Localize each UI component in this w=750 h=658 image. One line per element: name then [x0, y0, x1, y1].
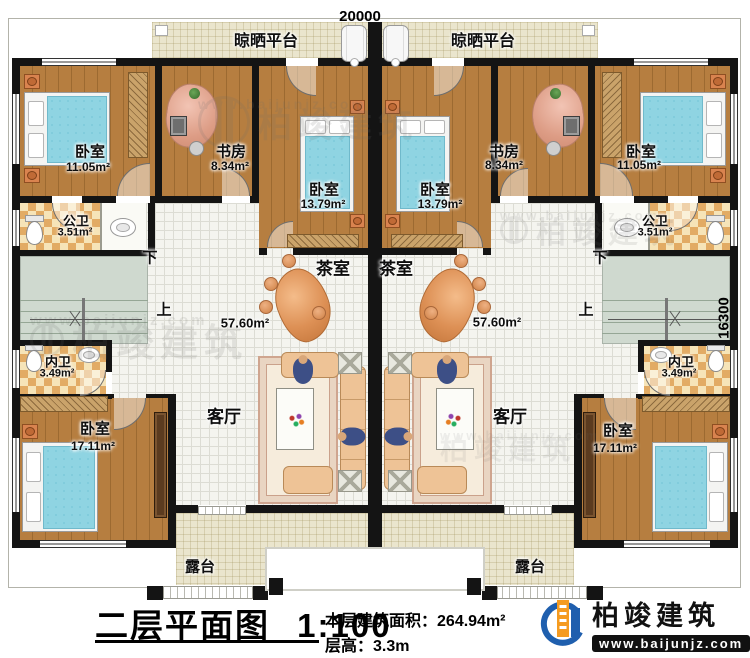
platform-corner — [582, 25, 595, 36]
room-label-study-left: 书房 — [216, 145, 246, 160]
wall — [588, 58, 595, 203]
toilet — [708, 350, 724, 372]
door-gap — [638, 372, 644, 394]
room-label-bedroom-top-left: 卧室 — [75, 145, 105, 160]
door-gap — [432, 58, 464, 66]
room-area-study-right: 8.34m² — [485, 159, 523, 171]
floor-height-label: 层高： — [325, 638, 373, 655]
wall — [638, 340, 644, 372]
wall — [382, 505, 504, 513]
pillow — [400, 120, 421, 134]
floor-height-line: 层高：3.3m — [325, 632, 409, 656]
stair-up-label-right: 上 — [578, 303, 593, 318]
stair-down-label-left: 下 — [142, 251, 157, 266]
room-area-bedroom-mid-right: 13.79m² — [418, 198, 463, 210]
wall — [483, 248, 491, 255]
wall — [382, 248, 457, 255]
room-area-bedroom-bottom-left: 17.11m² — [71, 440, 115, 452]
room-area-bedroom-top-right: 11.05m² — [617, 159, 661, 171]
pillow — [706, 133, 722, 158]
plant — [550, 88, 561, 99]
terrace-door-threshold — [504, 506, 552, 515]
company-logo: 柏竣建筑 www.baijunjz.com — [538, 594, 750, 652]
wall — [528, 196, 588, 203]
pillow — [709, 492, 724, 522]
nightstand — [385, 214, 400, 228]
washing-machine — [383, 25, 409, 62]
bed — [652, 442, 728, 532]
flower-vase — [444, 411, 464, 429]
room-label-tea-right: 茶室 — [379, 261, 413, 278]
room-label-tea-left: 茶室 — [316, 261, 350, 278]
nightstand — [712, 424, 728, 439]
hall-area-left: 57.60m² — [221, 317, 269, 330]
pillow — [706, 101, 722, 126]
floor-area-label: 本层建筑面积： — [325, 613, 437, 630]
wardrobe-hatch — [602, 72, 622, 158]
door-gap — [668, 196, 698, 203]
pillow — [709, 452, 724, 482]
stool — [454, 254, 468, 268]
sink — [614, 218, 640, 237]
room-label-terrace-left: 露台 — [185, 560, 215, 575]
wardrobe-hatch — [391, 234, 463, 248]
person-figure — [385, 428, 410, 446]
door-gap — [600, 196, 634, 203]
room-area-bedroom-bottom-right: 17.11m² — [593, 442, 637, 454]
stair-up-label-left: 上 — [156, 303, 171, 318]
stool — [477, 300, 491, 314]
wardrobe-hatch — [642, 396, 730, 412]
mattress — [655, 446, 707, 529]
room-label-bedroom-bottom-left: 卧室 — [80, 422, 110, 437]
room-area-bedroom-top-left: 11.05m² — [66, 161, 110, 173]
room-label-terrace-right: 露台 — [515, 560, 545, 575]
floor-area-value: 264.94m² — [437, 613, 506, 630]
room-label-bedroom-mid-right: 卧室 — [420, 183, 450, 198]
porch-void — [265, 547, 485, 591]
tv-cabinet — [583, 412, 596, 518]
floor-height-value: 3.3m — [373, 638, 409, 655]
wall — [574, 398, 582, 548]
stair-down-label-right: 下 — [592, 251, 607, 266]
company-logo-icon — [538, 596, 586, 650]
pillow — [424, 120, 445, 134]
logo-text-column: 柏竣建筑 www.baijunjz.com — [592, 594, 750, 652]
stool — [424, 306, 438, 320]
nightstand — [385, 100, 400, 114]
floor-area-line: 本层建筑面积：264.94m² — [325, 607, 506, 631]
dimension-width: 20000 — [339, 8, 381, 25]
room-area-public-bath-left: 3.51m² — [58, 228, 93, 239]
room-label-bedroom-bottom-right: 卧室 — [603, 424, 633, 439]
room-label-drying-left: 晾晒平台 — [234, 34, 298, 50]
computer-monitor — [563, 116, 580, 136]
wall — [595, 203, 602, 256]
window — [730, 350, 738, 388]
toilet — [707, 221, 724, 245]
window — [730, 210, 738, 246]
washing-machine-door — [391, 58, 400, 67]
side-table — [388, 470, 412, 492]
hall-area-right: 57.60m² — [473, 316, 521, 329]
stair-direction-line — [608, 319, 720, 320]
window — [634, 58, 708, 66]
wall — [491, 196, 500, 203]
porch-post — [467, 578, 481, 595]
room-label-bedroom-mid-left: 卧室 — [309, 183, 339, 198]
window — [730, 438, 738, 512]
room-label-living-right: 客厅 — [493, 409, 527, 426]
window — [624, 540, 710, 548]
stair-rail — [665, 298, 668, 344]
room-area-public-bath-right: 3.51m² — [638, 228, 673, 239]
wall — [491, 58, 498, 203]
party-wall — [368, 22, 382, 549]
room-area-bedroom-mid-left: 13.79m² — [301, 198, 346, 210]
nightstand — [710, 168, 726, 183]
desk-chair — [546, 141, 561, 156]
room-area-inner-bath-left: 3.49m² — [40, 369, 75, 380]
floor-plan-page: 柏竣建筑 www.baijunjz.com 柏竣建筑 www.baijunjz.… — [0, 0, 750, 658]
window — [730, 94, 738, 164]
porch-post — [269, 578, 283, 595]
person-figure — [437, 358, 457, 384]
stool — [472, 277, 486, 291]
room-label-living-left: 客厅 — [207, 409, 241, 426]
wall — [595, 250, 738, 256]
room-area-study-left: 8.34m² — [211, 160, 249, 172]
title-underline — [95, 640, 319, 643]
coffee-table — [436, 388, 474, 450]
dimension-depth: 16300 — [716, 297, 733, 339]
logo-company-name: 柏竣建筑 — [592, 594, 750, 633]
room-area-inner-bath-right: 3.49m² — [662, 369, 697, 380]
side-table — [388, 352, 412, 374]
nightstand — [710, 74, 726, 89]
wall — [552, 505, 574, 513]
armchair — [417, 466, 467, 494]
logo-website: www.baijunjz.com — [592, 635, 750, 652]
plan-title-text: 二层平面图 — [95, 607, 270, 644]
room-label-drying-right: 晾晒平台 — [451, 34, 515, 50]
